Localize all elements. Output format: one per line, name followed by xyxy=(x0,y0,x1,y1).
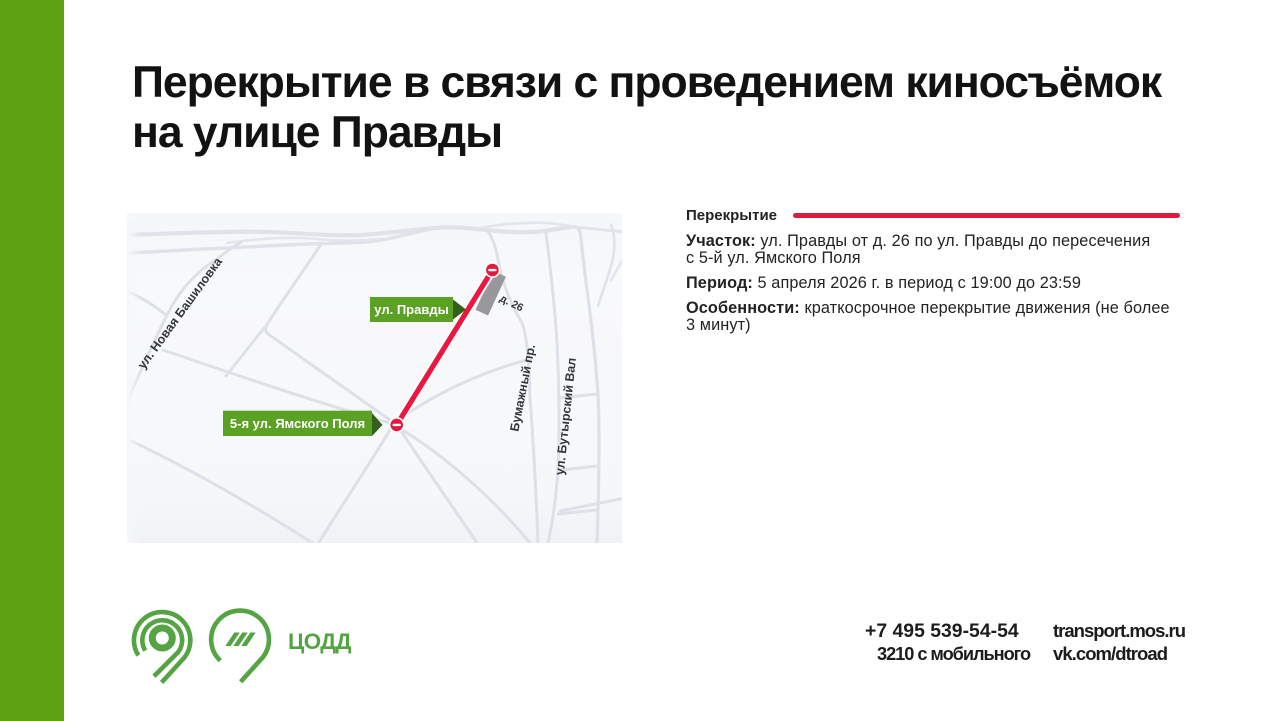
svg-text:ул. Правды: ул. Правды xyxy=(374,302,448,317)
svg-text:5-я ул. Ямского Поля: 5-я ул. Ямского Поля xyxy=(230,416,365,431)
